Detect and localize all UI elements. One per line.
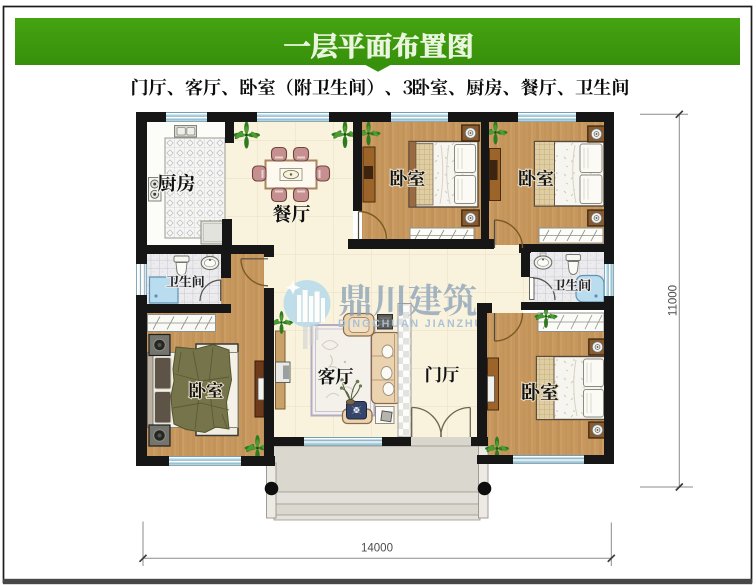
svg-text:14000: 14000 xyxy=(361,543,393,555)
svg-text:DINGCHUAN JIANZHU: DINGCHUAN JIANZHU xyxy=(338,318,484,330)
svg-text:11000: 11000 xyxy=(668,285,680,316)
